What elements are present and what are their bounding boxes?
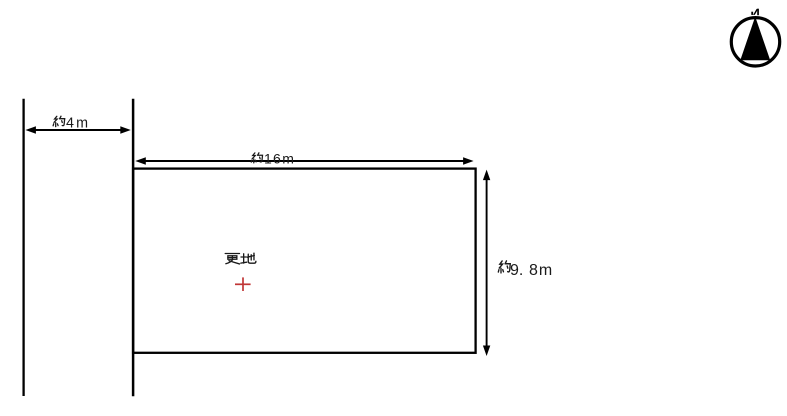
svg-text:4m: 4m: [66, 116, 90, 132]
svg-text:16: 16: [264, 151, 282, 167]
svg-text:9.: 9.: [510, 262, 523, 279]
svg-text:8m: 8m: [529, 262, 553, 279]
svg-text:m: m: [282, 151, 294, 167]
